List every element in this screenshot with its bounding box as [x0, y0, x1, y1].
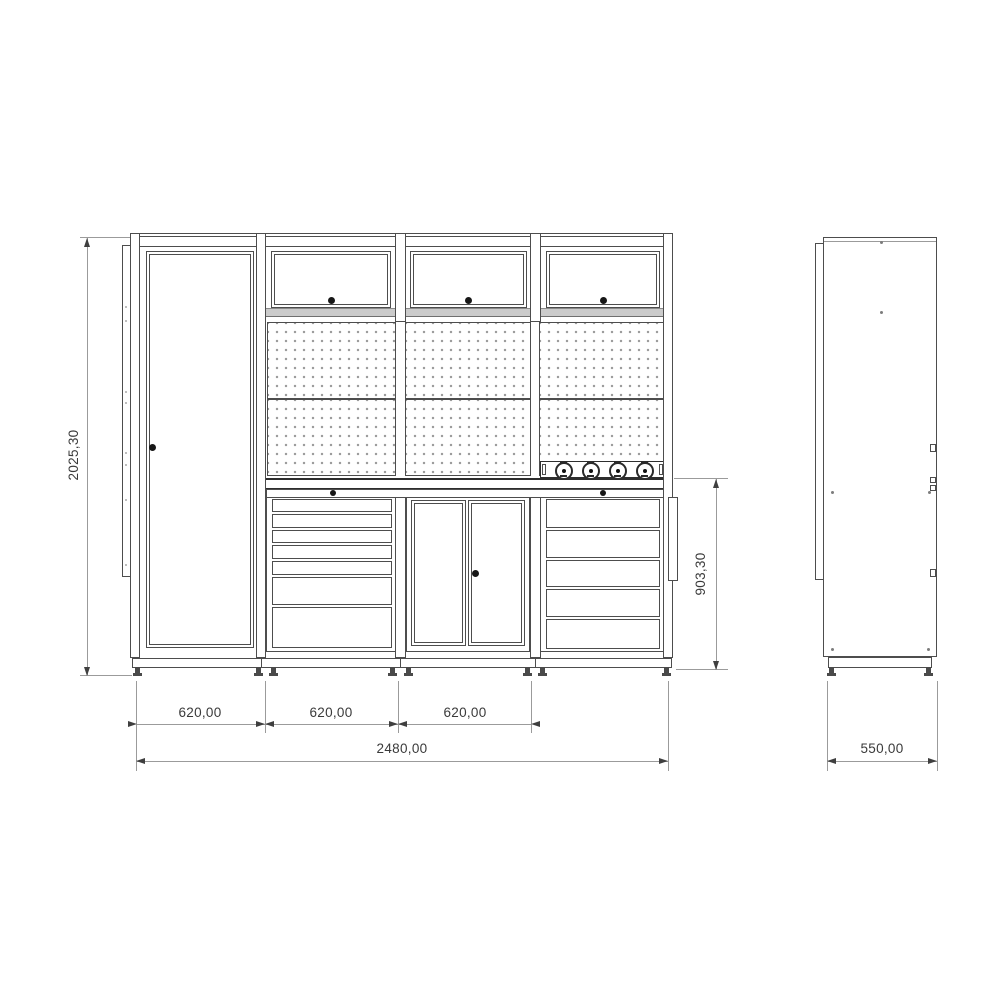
dimension-label-total-width: 2480,00: [362, 742, 442, 756]
frame-post: [395, 233, 406, 322]
plinth: [132, 658, 672, 668]
dimension-arrow: [398, 721, 407, 727]
drawer-front: [546, 499, 660, 528]
leveling-foot: [827, 673, 836, 676]
pegboard-panel: [539, 322, 665, 399]
frame-post: [130, 233, 140, 658]
extension-line: [668, 681, 669, 771]
tall-cabinet-door: [146, 251, 254, 648]
dimension-arrow: [256, 721, 265, 727]
frame-post: [395, 497, 406, 658]
leveling-foot: [404, 673, 413, 676]
side-mount-tab: [930, 485, 936, 491]
dimension-arrow: [713, 479, 719, 488]
shelf-pin-hole: [125, 402, 127, 404]
dimension-line: [137, 761, 668, 762]
drawer-front: [272, 545, 392, 559]
dimension-line: [137, 724, 531, 725]
dimension-label-depth: 550,00: [847, 742, 917, 756]
shelf-pin-hole: [125, 564, 127, 566]
leveling-foot: [254, 673, 263, 676]
screw-dot: [927, 648, 930, 651]
side-mount-tab: [930, 444, 936, 452]
leveling-foot: [269, 673, 278, 676]
overhead-bottom-rail: [266, 308, 663, 317]
dimension-arrow: [265, 721, 274, 727]
leveling-foot: [133, 673, 142, 676]
dimension-line: [716, 479, 717, 670]
door-handle-dot: [472, 570, 479, 577]
worktop-end-bracket: [668, 497, 678, 581]
power-strip-end-cap: [542, 464, 546, 475]
shelf-pin-hole: [125, 452, 127, 454]
leveling-foot: [924, 673, 933, 676]
screw-dot: [831, 491, 834, 494]
shelf-pin-hole: [125, 320, 127, 322]
plinth-divider: [261, 658, 262, 668]
plinth-divider: [400, 658, 401, 668]
drawer-front: [546, 530, 660, 558]
workshop-cabinet-technical-drawing: 2025,30 903,30 620,00 620,00 620,00 2480…: [0, 0, 1000, 1000]
dimension-arrow: [659, 758, 668, 764]
drawer-front: [272, 561, 392, 575]
pegboard-panel: [405, 399, 531, 476]
frame-post: [530, 497, 541, 658]
plinth-divider: [535, 658, 536, 668]
pegboard-panel: [405, 322, 531, 399]
dimension-label-bench-height: 903,30: [694, 534, 708, 614]
side-mount-tab: [930, 569, 936, 577]
drawer-front: [272, 607, 392, 648]
door-handle-dot: [149, 444, 156, 451]
dimension-arrow: [389, 721, 398, 727]
dimension-arrow: [827, 758, 836, 764]
drawer-front: [546, 589, 660, 617]
door-handle-dot: [328, 297, 335, 304]
dimension-arrow: [84, 667, 90, 676]
frame-post: [530, 233, 541, 322]
extension-line: [937, 681, 938, 771]
side-plinth: [828, 657, 932, 668]
dimension-label-module-width: 620,00: [430, 706, 500, 720]
drawer-front: [272, 530, 392, 543]
shelf-pin-hole: [125, 391, 127, 393]
dimension-line: [87, 238, 88, 676]
screw-dot: [831, 648, 834, 651]
screw-dot: [928, 491, 931, 494]
worktop: [262, 478, 673, 489]
leveling-foot: [523, 673, 532, 676]
side-mount-tab: [930, 477, 936, 483]
leveling-foot: [388, 673, 397, 676]
dimension-arrow: [128, 721, 137, 727]
drawer-front: [272, 514, 392, 528]
door-handle-dot: [465, 297, 472, 304]
screw-dot: [880, 241, 883, 244]
dimension-arrow: [531, 721, 540, 727]
drawer-front: [546, 560, 660, 587]
shelf-pin-hole: [125, 306, 127, 308]
drawer-front: [546, 619, 660, 649]
pegboard-panel: [267, 322, 396, 399]
dimension-arrow: [928, 758, 937, 764]
leveling-foot: [662, 673, 671, 676]
frame-post: [663, 233, 673, 658]
lock-dot: [330, 490, 336, 496]
dimension-arrow: [84, 238, 90, 247]
leveling-foot: [538, 673, 547, 676]
dimension-label-module-width: 620,00: [296, 706, 366, 720]
drawer-front: [272, 499, 392, 512]
lock-dot: [600, 490, 606, 496]
frame-post: [256, 233, 266, 658]
dimension-label-module-width: 620,00: [165, 706, 235, 720]
dimension-arrow: [713, 661, 719, 670]
cabinet-door-left: [411, 500, 466, 646]
drawer-front: [272, 577, 392, 605]
dimension-arrow: [136, 758, 145, 764]
dimension-line: [828, 761, 937, 762]
pegboard-panel: [267, 399, 396, 476]
dimension-label-total-height: 2025,30: [67, 410, 81, 500]
screw-dot: [880, 311, 883, 314]
shelf-pin-hole: [125, 499, 127, 501]
extension-line: [674, 478, 728, 479]
side-body: [823, 237, 937, 657]
door-handle-dot: [600, 297, 607, 304]
extension-line: [676, 669, 728, 670]
shelf-pin-hole: [125, 464, 127, 466]
